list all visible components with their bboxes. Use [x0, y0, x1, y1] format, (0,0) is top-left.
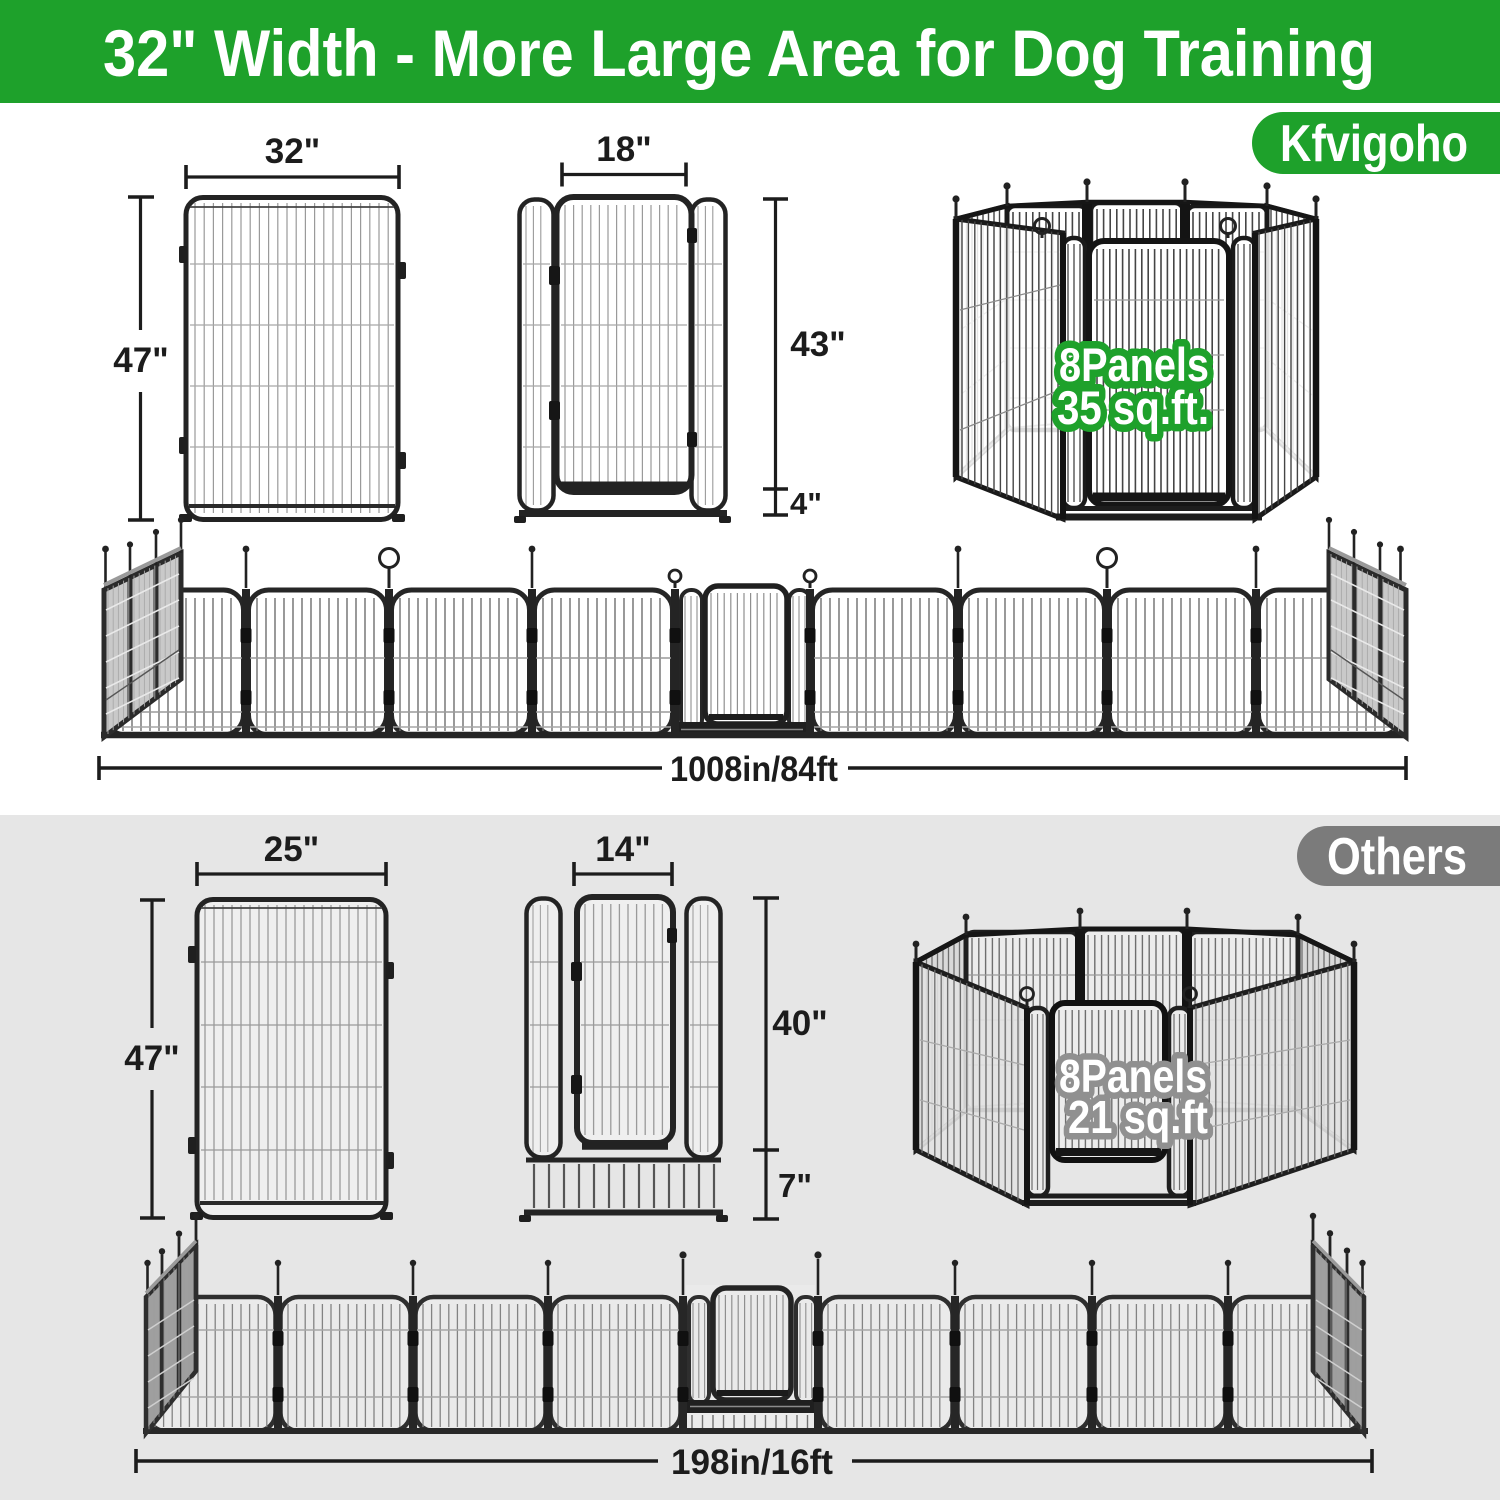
svg-text:198in/16ft: 198in/16ft: [671, 1443, 833, 1482]
svg-text:18": 18": [596, 130, 652, 169]
svg-text:Kfvigoho: Kfvigoho: [1280, 115, 1468, 173]
svg-text:47": 47": [113, 341, 169, 380]
svg-text:25": 25": [264, 830, 320, 869]
svg-text:14": 14": [595, 830, 651, 869]
svg-text:1008in/84ft: 1008in/84ft: [670, 750, 838, 789]
svg-text:47": 47": [124, 1039, 180, 1078]
svg-text:43": 43": [790, 325, 846, 364]
svg-text:7": 7": [778, 1167, 812, 1204]
svg-text:32" Width - More Large Area fo: 32" Width - More Large Area for Dog Trai…: [103, 16, 1375, 90]
svg-text:40": 40": [772, 1004, 828, 1043]
svg-text:32": 32": [265, 132, 321, 171]
svg-text:Others: Others: [1327, 828, 1467, 886]
svg-text:21 sq.ft: 21 sq.ft: [1068, 1091, 1208, 1143]
svg-text:35 sq.ft.: 35 sq.ft.: [1057, 381, 1209, 434]
svg-text:4": 4": [790, 486, 822, 521]
